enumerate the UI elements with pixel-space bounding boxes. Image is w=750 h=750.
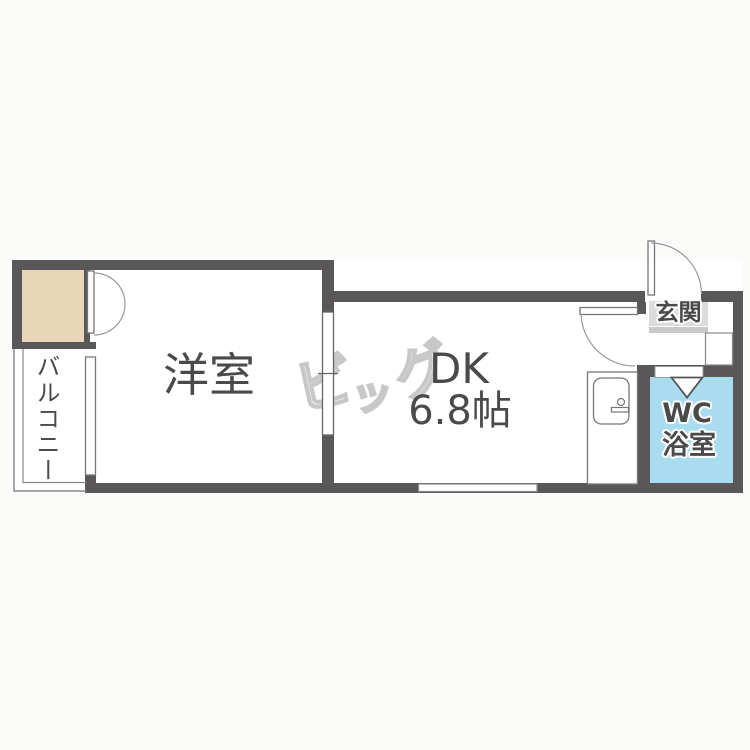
wall-room-divider — [322, 260, 334, 493]
wall-left — [12, 260, 22, 349]
wall-hall-stub — [637, 302, 646, 314]
balcony-label: バルコニー — [32, 352, 64, 486]
entrance-label: 玄関 — [649, 301, 708, 326]
entrance-step — [649, 327, 708, 333]
dk-size-label: 6.8帖 — [360, 390, 560, 432]
floor-plan-page: { "colors": { "wall": "#595757", "closet… — [0, 0, 750, 750]
wc-label: WC — [647, 399, 727, 428]
wall-hall-bath — [637, 365, 743, 377]
wall-top-left — [12, 260, 334, 270]
bath-label: 浴室 — [649, 431, 729, 460]
wall-under-closet — [12, 342, 96, 349]
closet-area — [22, 270, 84, 342]
western-room-label: 洋室 — [129, 351, 289, 399]
dk-label: DK — [389, 347, 529, 391]
wall-balcony-corner — [85, 475, 96, 483]
wall-dk-top — [334, 291, 645, 302]
wall-closet-right — [84, 260, 90, 342]
wall-right — [733, 291, 743, 493]
